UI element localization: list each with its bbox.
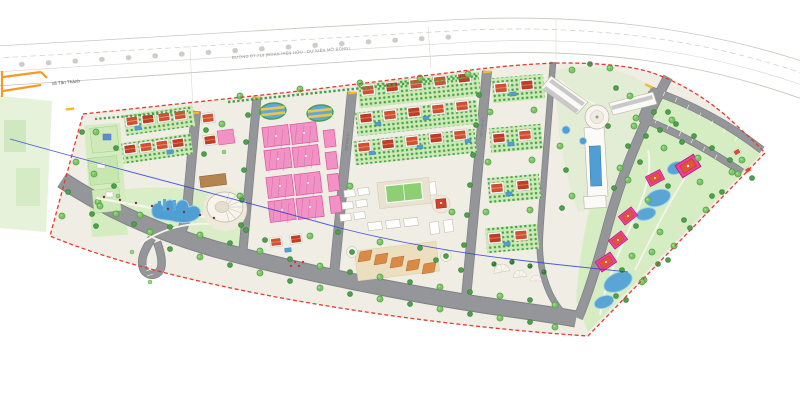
commune-label: xã Tân Thành	[52, 79, 81, 86]
master-plan-screenshot: ĐƯỜNG ĐT.719 (ĐOẠN HIỆN HỮU - DỰ KIẾN MỞ…	[0, 0, 800, 400]
pink-lot-small	[217, 129, 235, 145]
red-pavilion	[432, 195, 450, 213]
offsite-vegetation-patch	[4, 120, 26, 152]
hotel-lap-pool	[589, 146, 601, 186]
cadastral-line	[190, 46, 193, 110]
hotel-round-pool	[562, 126, 570, 134]
hotel-wing-south	[584, 126, 608, 209]
offsite-vegetation	[0, 96, 52, 232]
site-plan-map: ĐƯỜNG ĐT.719 (ĐOẠN HIỆN HỮU - DỰ KIẾN MỞ…	[0, 0, 800, 400]
sports-court	[377, 177, 431, 208]
hotel-round-pool	[580, 138, 587, 145]
garden-building	[103, 134, 111, 140]
offsite-vegetation-patch	[16, 168, 40, 206]
garden-building	[106, 192, 113, 197]
